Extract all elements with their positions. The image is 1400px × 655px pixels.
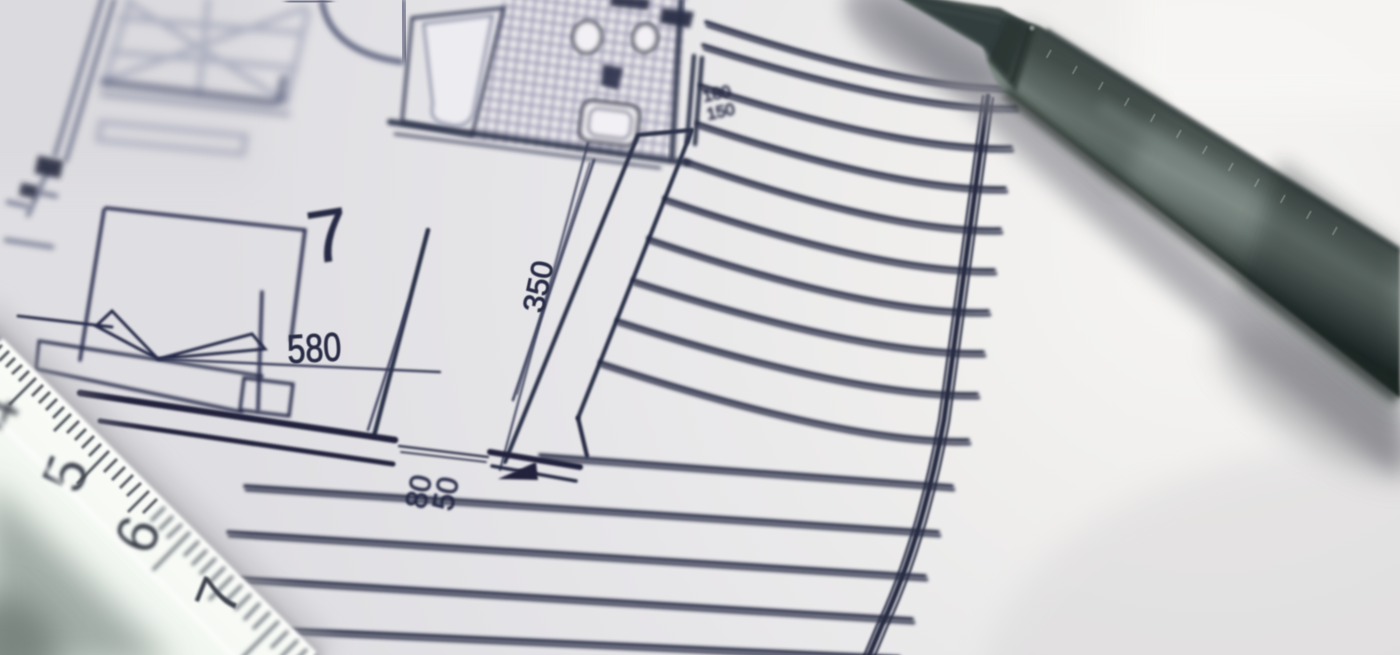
svg-text:580: 580: [286, 325, 342, 372]
svg-text:50: 50: [427, 474, 466, 514]
